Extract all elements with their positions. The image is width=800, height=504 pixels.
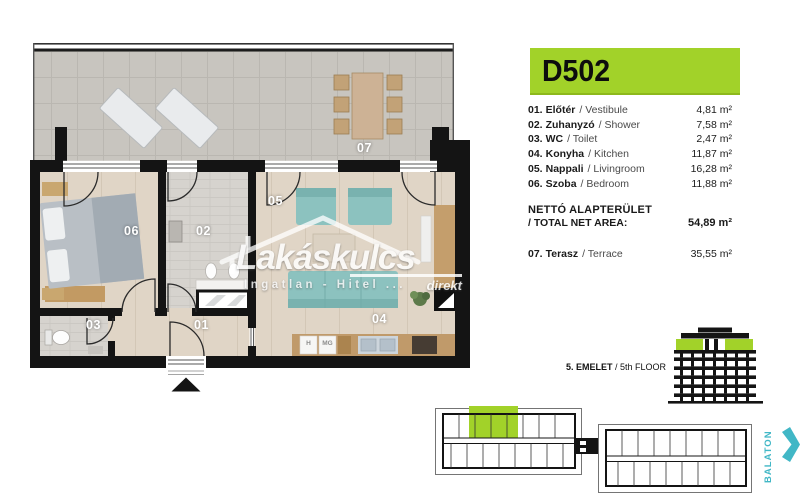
mirror xyxy=(169,221,182,242)
highlighted-unit xyxy=(469,406,518,438)
room-label-02: 02 xyxy=(196,224,211,238)
legend-row: 04.Konyha/ Kitchen11,87 m² xyxy=(528,147,732,162)
toilet xyxy=(53,331,70,345)
terrace-row: 07.Terasz/ Terrace35,55 m² xyxy=(528,247,732,262)
legend-row: 06.Szoba/ Bedroom11,88 m² xyxy=(528,177,732,192)
toilet xyxy=(206,263,217,279)
terrace-pillar xyxy=(432,127,449,141)
legend-row: 01.Előtér/ Vestibule4,81 m² xyxy=(528,103,732,118)
hob xyxy=(412,336,437,354)
unit-id: D502 xyxy=(530,48,610,89)
legend-row: 05.Nappali/ Livingroom16,28 m² xyxy=(528,162,732,177)
bed xyxy=(40,193,144,289)
room-label-01: 01 xyxy=(194,318,209,332)
bidet xyxy=(229,263,240,279)
legend-row: 03.WC/ Toilet2,47 m² xyxy=(528,132,732,147)
entrance-arrow xyxy=(172,378,201,392)
total-net-area: NETTÓ ALAPTERÜLET / TOTAL NET AREA: 54,8… xyxy=(528,204,732,229)
fridge-label: H xyxy=(300,340,317,347)
room-label-06: 06 xyxy=(124,224,139,238)
info-panel: D502 01.Előtér/ Vestibule4,81 m² 02.Zuha… xyxy=(528,44,732,262)
dishwasher-label: MG xyxy=(319,340,336,347)
unit-id-badge: D502 xyxy=(530,48,740,95)
legend-row: 02.Zuhanyzó/ Shower7,58 m² xyxy=(528,118,732,133)
room-label-04: 04 xyxy=(372,312,387,326)
terrace xyxy=(33,43,454,162)
terrace-dining-set xyxy=(334,73,402,139)
building-elevation-icon xyxy=(668,328,763,404)
shower xyxy=(198,291,249,310)
balaton-direction-label: BALATON xyxy=(763,421,777,483)
washbasin-counter xyxy=(196,280,248,291)
room-label-03: 03 xyxy=(86,318,101,332)
room-legend: 01.Előtér/ Vestibule4,81 m² 02.Zuhanyzó/… xyxy=(528,103,732,191)
room-label-05: 05 xyxy=(268,194,283,208)
floor-indicator: 5. EMELET / 5th FLOOR xyxy=(566,362,666,372)
nightstand xyxy=(42,288,64,300)
room-label-07: 07 xyxy=(357,141,372,155)
coffee-table xyxy=(313,234,355,262)
balaton-direction-arrow xyxy=(782,427,800,462)
total-area-value: 54,89 m² xyxy=(688,217,732,229)
site-key-plan xyxy=(436,406,752,493)
terrace-pillar xyxy=(55,127,67,161)
